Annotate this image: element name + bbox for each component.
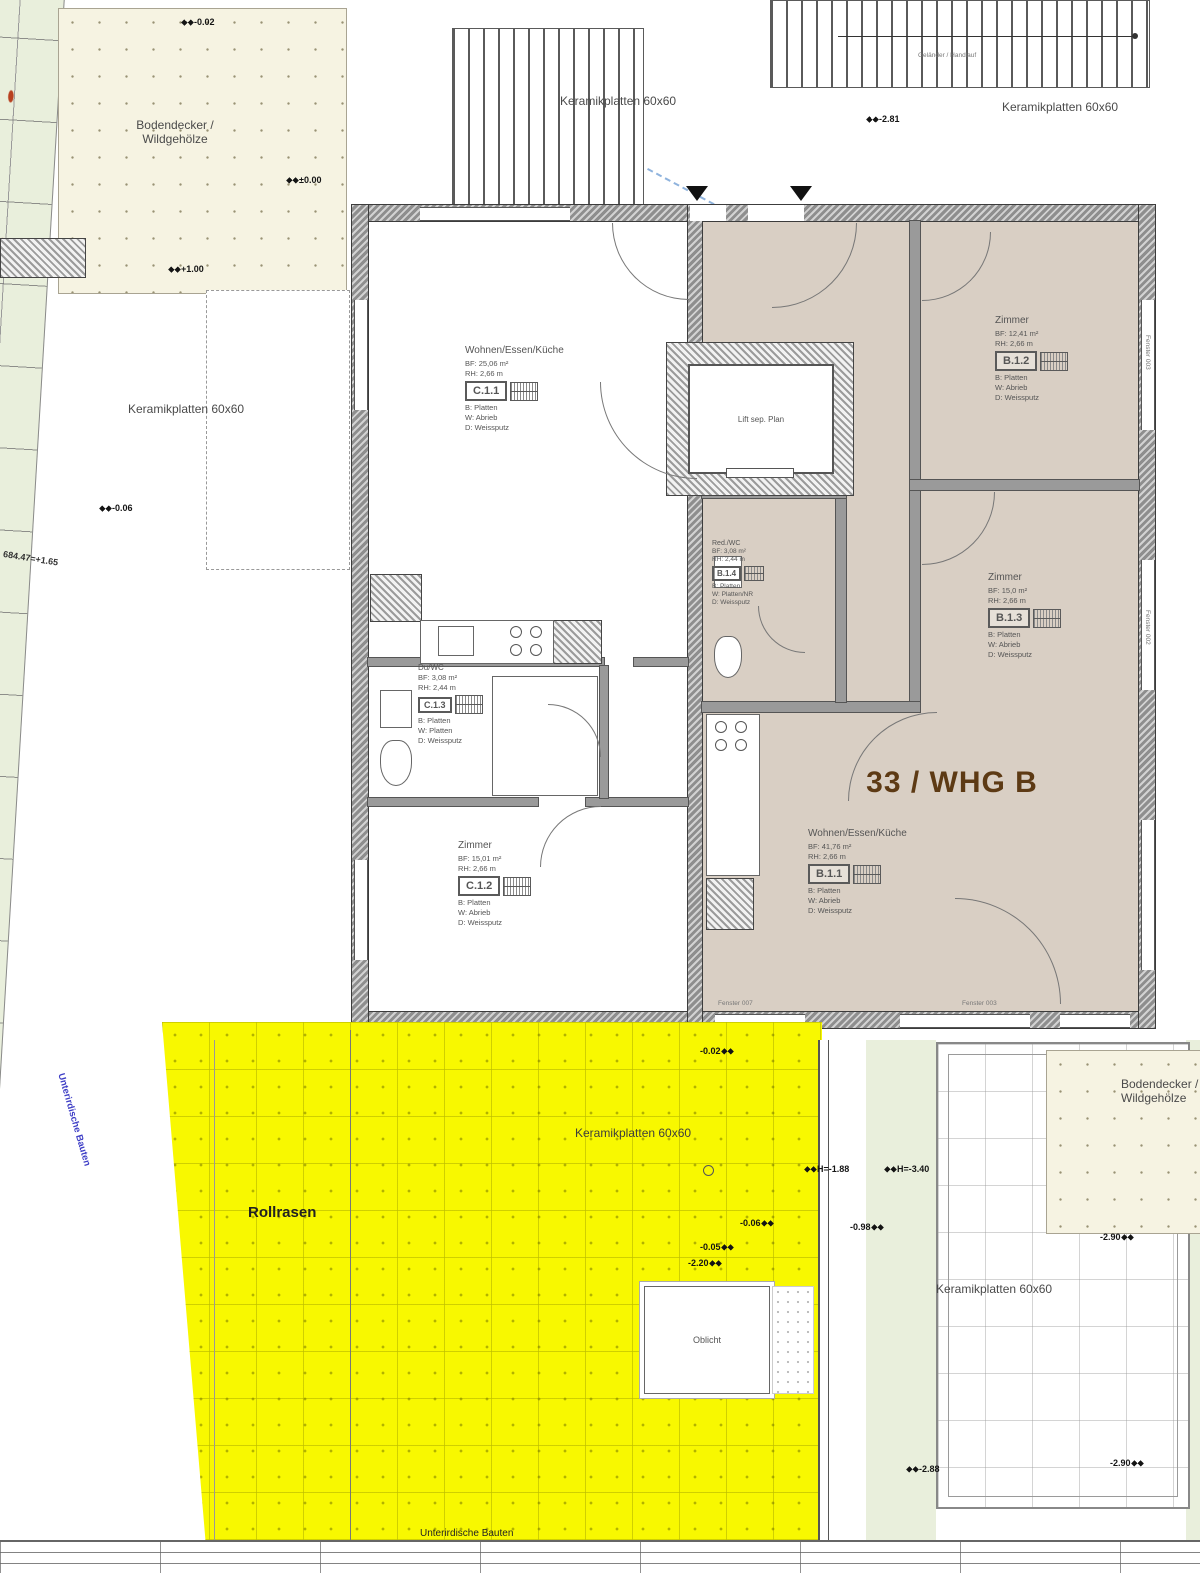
entrance-arrow-icon <box>790 186 812 201</box>
bath-sink <box>380 690 412 728</box>
planting-area-label: Bodendecker / Wildgehölze <box>1121 1077 1200 1105</box>
room-label-c13: Du/WC BF: 3,08 m² RH: 2,44 m C.1.3 B: Pl… <box>418 663 483 746</box>
keramik-label-bottom-right: Keramikplatten 60x60 <box>936 1282 1052 1296</box>
fenster-label: Fenster 003 <box>962 1000 997 1007</box>
planting-area-bottom-right: Bodendecker / Wildgehölze <box>1046 1050 1200 1234</box>
dashed-area <box>206 290 350 570</box>
elevation-marker: +1.00 <box>170 264 204 274</box>
stair-handrail-line <box>838 36 1136 37</box>
wall-hatch-block <box>0 238 86 278</box>
elevation-marker: -2.20 <box>688 1258 720 1268</box>
door-gap <box>690 205 726 221</box>
interior-wall <box>910 221 920 710</box>
elevation-marker: -0.02 <box>183 17 215 27</box>
elevation-marker: H=-1.88 <box>806 1164 849 1174</box>
toilet <box>714 636 742 678</box>
planting-area-top-left <box>58 8 347 294</box>
elevation-marker: ±0.00 <box>288 175 321 185</box>
interior-wall <box>910 480 1139 490</box>
room-label-b12: Zimmer BF: 12,41 m² RH: 2,66 m B.1.2 B: … <box>995 315 1068 403</box>
sidewalk <box>0 1540 1200 1573</box>
wall-middle <box>688 205 702 1028</box>
elevation-marker: H=-3.40 <box>886 1164 929 1174</box>
elevation-marker: -0.98 <box>850 1222 882 1232</box>
entrance-arrow-icon <box>686 186 708 201</box>
hedge-strip: Hecken Pflanzen Wild (gem. Pflanzenliste… <box>0 0 66 1573</box>
fenster-label: Fenster 002 <box>1144 610 1151 645</box>
green-strip-mid <box>866 1040 936 1573</box>
elevation-marker: -0.06 <box>740 1218 772 1228</box>
elevation-marker: -2.81 <box>868 114 900 124</box>
keramik-label-top-center: Keramikplatten 60x60 <box>560 94 676 108</box>
room-label-b11: Wohnen/Essen/Küche BF: 41,76 m² RH: 2,66… <box>808 828 907 916</box>
elevation-marker: -0.05 <box>700 1242 732 1252</box>
room-label-b14: Red./WC BF: 3,08 m² RH: 2,44 m B.1.4 B: … <box>712 540 764 607</box>
stove <box>506 622 548 660</box>
retaining-wall <box>818 1040 829 1545</box>
kitchen-sink <box>438 626 474 656</box>
skylight: Oblicht <box>644 1286 770 1394</box>
shaft <box>370 574 422 622</box>
stair-handrail-dot <box>1132 33 1138 39</box>
interior-wall <box>836 488 846 702</box>
elevation-marker: -2.90 <box>1100 1232 1132 1242</box>
keramik-label-top-right: Keramikplatten 60x60 <box>1002 100 1118 114</box>
boundary-line <box>214 1040 215 1540</box>
elevator-label: Lift sep. Plan <box>738 415 784 424</box>
stairs-top-center <box>452 28 644 208</box>
skylight-label: Oblicht <box>693 1335 721 1345</box>
room-label-c11: Wohnen/Essen/Küche BF: 25,06 m² RH: 2,66… <box>465 345 564 433</box>
gravel-strip <box>772 1286 814 1394</box>
door-gap <box>748 205 804 221</box>
fenster-label: Fenster 003 <box>1144 335 1151 370</box>
room-label-b13: Zimmer BF: 15,0 m² RH: 2,66 m B.1.3 B: P… <box>988 572 1061 660</box>
window <box>420 207 570 221</box>
interior-wall <box>586 798 688 806</box>
elevation-marker: -2.90 <box>1110 1458 1142 1468</box>
stairs-top-right <box>770 0 1150 88</box>
room-label-c12: Zimmer BF: 15,01 m² RH: 2,66 m C.1.2 B: … <box>458 840 531 928</box>
elevation-marker: -0.02 <box>700 1046 732 1056</box>
window <box>354 300 368 410</box>
window <box>1060 1014 1130 1028</box>
shaft <box>552 620 602 664</box>
rollrasen-label: Rollrasen <box>248 1204 316 1221</box>
keramik-label-lawn: Keramikplatten 60x60 <box>575 1126 691 1140</box>
planting-area-label: Bodendecker / Wildgehölze <box>95 118 255 146</box>
interior-wall <box>702 702 920 712</box>
stove <box>710 716 754 756</box>
boundary-line <box>350 1030 351 1542</box>
toilet <box>380 740 412 786</box>
elevation-marker: -2.88 <box>908 1464 940 1474</box>
window <box>1141 820 1155 970</box>
elevator-door <box>726 468 794 478</box>
window <box>354 860 368 960</box>
drain-icon <box>703 1165 714 1176</box>
window <box>900 1014 1030 1028</box>
interior-wall <box>368 798 538 806</box>
elevation-marker: -0.06 <box>101 503 133 513</box>
elevator-cab: Lift sep. Plan <box>688 364 834 474</box>
underground-note-rotated: Unterirdische Bauten <box>55 1072 92 1167</box>
floor-plan: Hecken Pflanzen Wild (gem. Pflanzenliste… <box>0 0 1200 1573</box>
underground-note-bottom: Unterirdische Bauten <box>420 1528 513 1539</box>
fenster-label: Fenster 007 <box>718 1000 753 1007</box>
apartment-title: 33 / WHG B <box>832 766 1072 800</box>
shaft <box>706 878 754 930</box>
interior-wall <box>600 666 608 798</box>
keramik-label-left: Keramikplatten 60x60 <box>128 402 244 416</box>
handrail-label: Geländer / Handlauf <box>918 52 976 59</box>
interior-wall <box>634 658 688 666</box>
